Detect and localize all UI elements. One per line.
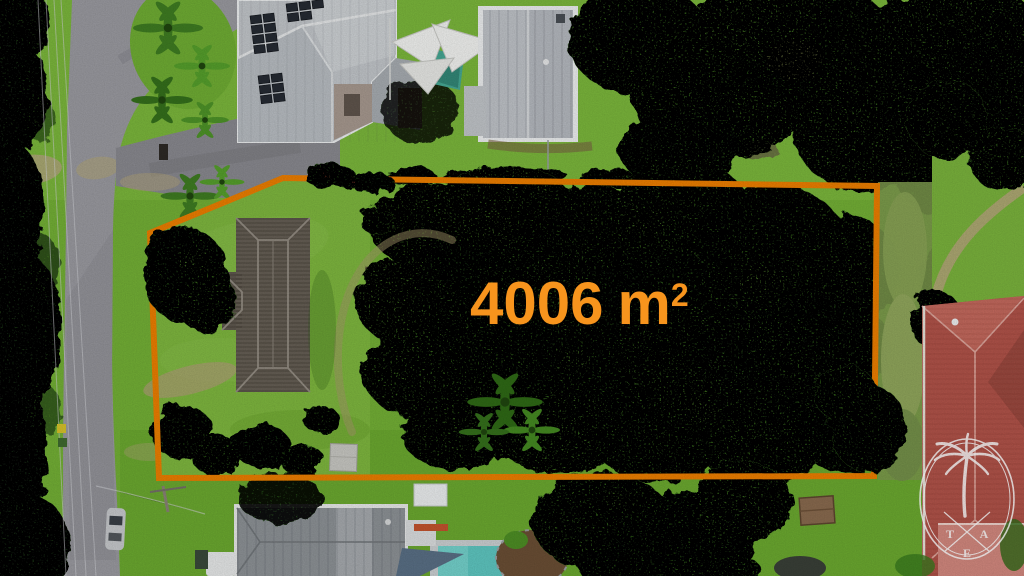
area-label: 4006m2 <box>470 274 689 334</box>
area-value: 4006 <box>470 270 603 337</box>
area-unit: m <box>617 270 670 337</box>
aerial-photo: T A E 4006m2 <box>0 0 1024 576</box>
area-exponent: 2 <box>671 277 689 313</box>
